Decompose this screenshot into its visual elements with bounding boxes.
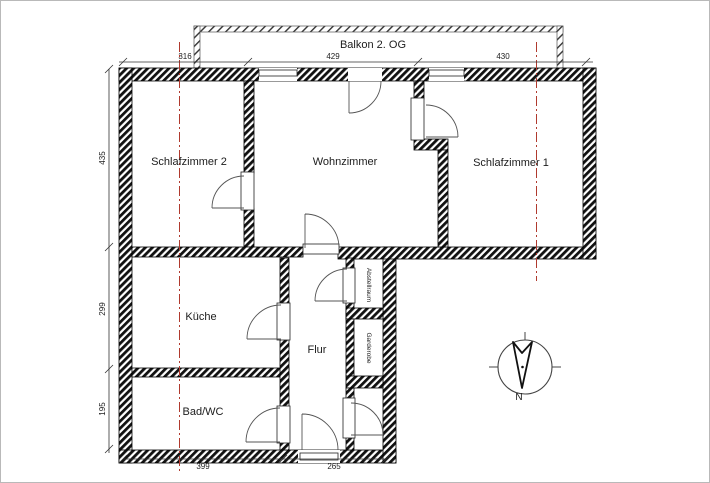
dimension-label-bottom-1: 399 <box>196 462 210 471</box>
dimension-label-bottom-2: 265 <box>327 462 341 471</box>
door-swing-schlafzimmer2 <box>212 176 244 208</box>
door-swing-kueche <box>247 305 281 339</box>
door-frame-nook <box>343 398 355 438</box>
compass-north-icon: N <box>489 332 561 403</box>
door-frame-bad <box>277 406 290 443</box>
door-swing-abstellraum <box>315 269 347 301</box>
door-swing-wohnzimmer-flur <box>305 214 339 248</box>
room-label-abstellraum: Abstellraum <box>365 268 372 302</box>
door-frame-kueche <box>277 303 290 340</box>
door-frame-schlafzimmer1 <box>411 98 424 140</box>
floorplan-drawing: 316 429 430 435 299 195 399 265 Balkon 2… <box>1 1 709 482</box>
door-swing-nook <box>351 403 383 435</box>
floorplan-canvas: 316 429 430 435 299 195 399 265 Balkon 2… <box>0 0 710 483</box>
dimension-label-left-3: 195 <box>98 402 107 416</box>
door-swing-balcony <box>349 81 381 113</box>
room-label-flur: Flur <box>308 344 327 356</box>
compass-north-label: N <box>515 392 522 403</box>
room-label-garderobe: Garderobe <box>365 332 372 363</box>
balcony-door-opening <box>348 68 382 81</box>
door-frame-schlafzimmer2 <box>241 172 254 210</box>
room-label-bad-wc: Bad/WC <box>183 406 224 418</box>
door-frame-abstellraum <box>343 268 355 303</box>
door-swing-bad <box>246 408 280 442</box>
dimension-label-top-2: 429 <box>326 52 340 61</box>
windows <box>259 68 464 463</box>
room-label-kueche: Küche <box>185 311 216 323</box>
room-label-wohnzimmer: Wohnzimmer <box>313 156 378 168</box>
room-label-schlafzimmer2: Schlafzimmer 2 <box>151 156 227 168</box>
dimension-label-left-2: 299 <box>98 302 107 316</box>
door-swing-entrance <box>302 414 338 450</box>
dimension-label-left-1: 435 <box>98 151 107 165</box>
door-swing-schlafzimmer1 <box>426 105 458 137</box>
room-label-balkon: Balkon 2. OG <box>340 39 406 51</box>
door-frames <box>241 98 424 443</box>
dimension-label-top-3: 430 <box>496 52 510 61</box>
dimension-label-top-1: 316 <box>178 52 192 61</box>
door-frame-wohnzimmer <box>303 244 339 254</box>
room-label-schlafzimmer1: Schlafzimmer 1 <box>473 157 549 169</box>
